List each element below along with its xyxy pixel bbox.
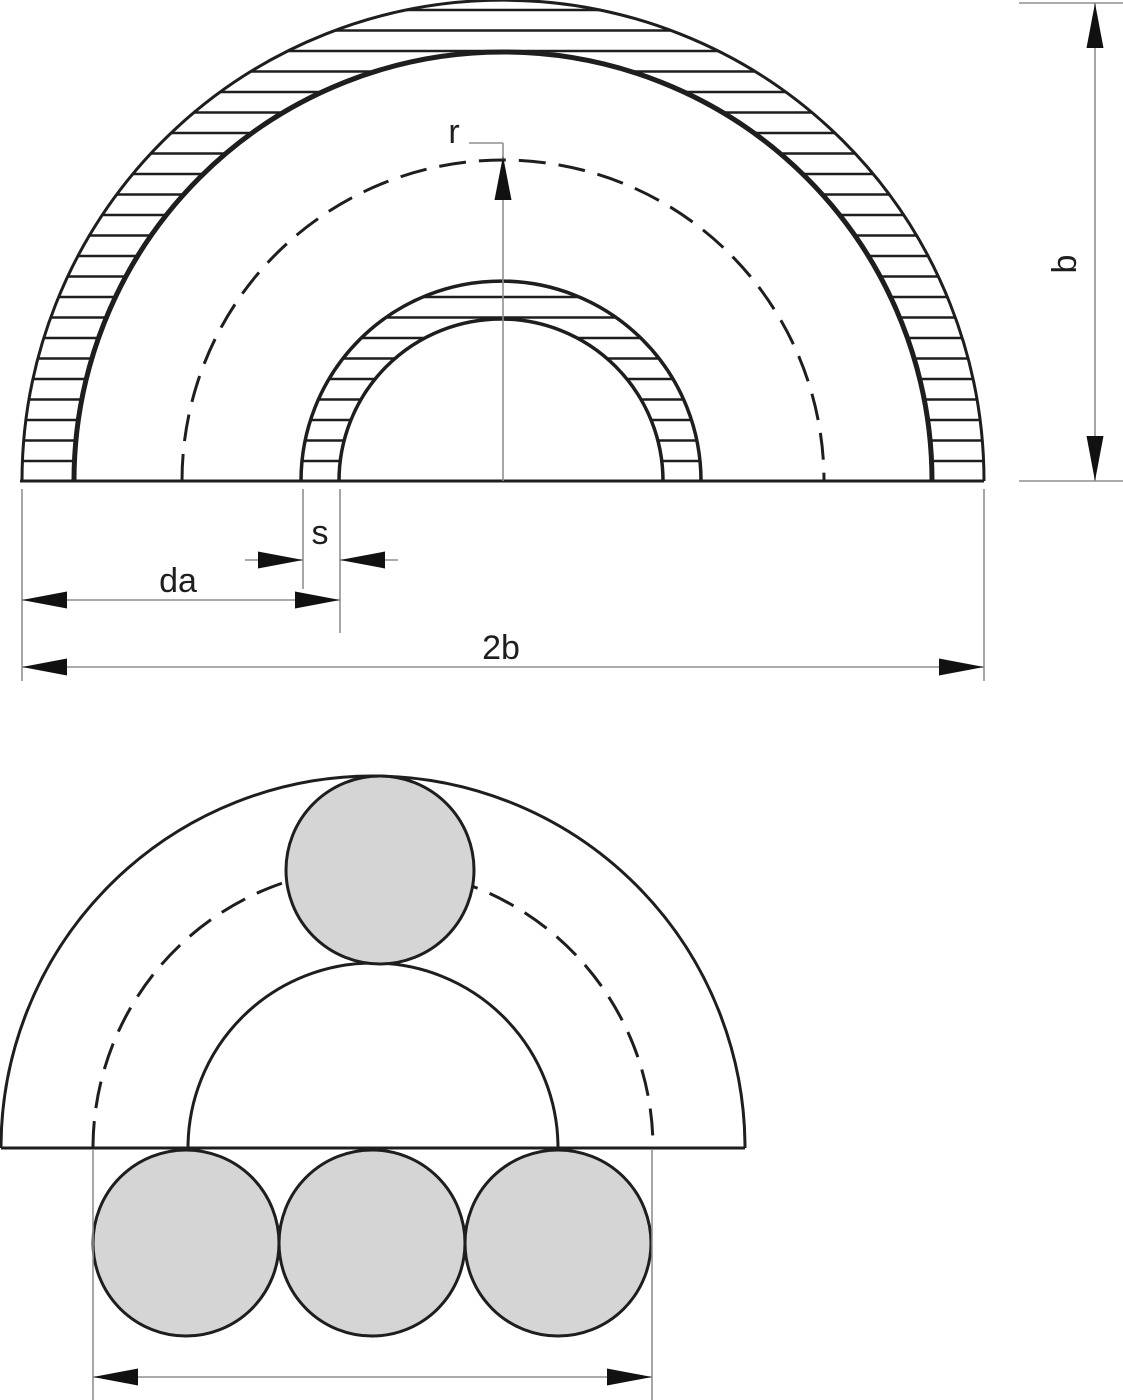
arrow-up-icon	[495, 156, 512, 200]
label-radius-r: r	[448, 115, 459, 149]
label-height-b: b	[1048, 255, 1082, 274]
pipe-circle-middle	[279, 1150, 465, 1336]
dimension-s	[245, 489, 398, 633]
arrow-up-icon	[1087, 3, 1104, 48]
arrow-right-icon	[258, 552, 303, 569]
arrow-right-icon	[939, 659, 984, 676]
pipe-circles-figure	[1, 776, 745, 1400]
inner-arc	[188, 963, 558, 1148]
arrow-left-icon	[340, 552, 385, 569]
label-wall-thickness-s: s	[312, 516, 329, 550]
arrow-down-icon	[1087, 436, 1104, 481]
inner-wall-hatch-band	[301, 281, 701, 481]
pipe-circle-left	[93, 1150, 279, 1336]
pipe-circle-top	[286, 776, 474, 964]
arrow-left-icon	[22, 592, 67, 609]
label-width-2b: 2b	[482, 631, 520, 665]
arrow-left-icon	[22, 659, 67, 676]
pipe-bend-drawing	[0, 0, 1123, 1400]
dimension-b	[1019, 3, 1123, 481]
technical-drawing-page: r s da 2b b	[0, 0, 1123, 1400]
label-outer-diameter-da: da	[159, 564, 197, 598]
arrow-right-icon	[295, 592, 340, 609]
pipe-circle-right	[465, 1150, 651, 1336]
arrow-right-icon	[607, 1369, 652, 1386]
arrow-left-icon	[93, 1369, 138, 1386]
